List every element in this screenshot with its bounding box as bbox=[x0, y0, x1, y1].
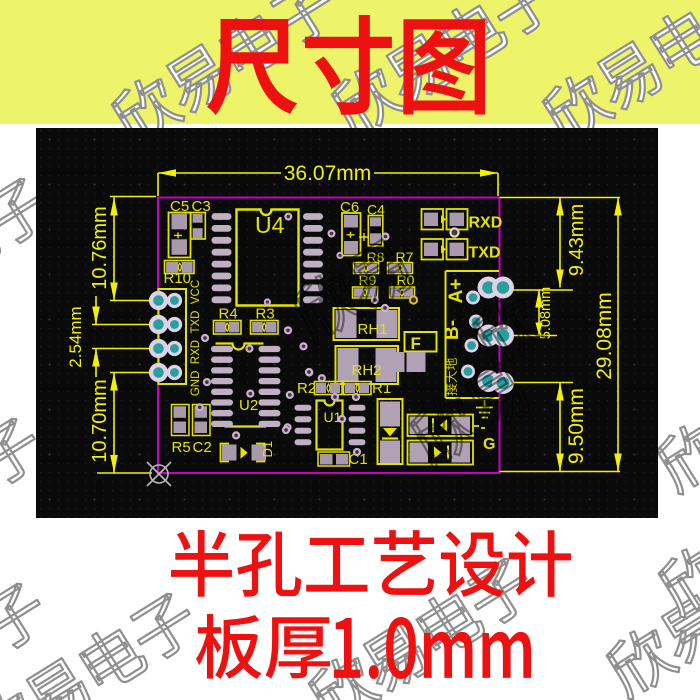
svg-text:10.70mm: 10.70mm bbox=[89, 379, 111, 462]
svg-text:9.50mm: 9.50mm bbox=[565, 388, 588, 464]
svg-text:RH1: RH1 bbox=[358, 321, 388, 338]
svg-text:29.08mm: 29.08mm bbox=[593, 292, 616, 380]
svg-text:R2: R2 bbox=[297, 380, 316, 397]
svg-text:GND RXD TXD VCC: GND RXD TXD VCC bbox=[190, 280, 202, 396]
svg-text:A+: A+ bbox=[446, 279, 467, 304]
svg-text:R5: R5 bbox=[172, 439, 191, 456]
svg-text:U4: U4 bbox=[255, 212, 285, 238]
svg-text:U2: U2 bbox=[239, 397, 258, 414]
svg-text:36.07mm: 36.07mm bbox=[284, 162, 372, 185]
svg-text:R10: R10 bbox=[164, 270, 192, 287]
svg-text:RXD: RXD bbox=[469, 215, 503, 232]
svg-text:5.08mm: 5.08mm bbox=[538, 287, 554, 339]
svg-text:9.43mm: 9.43mm bbox=[566, 204, 588, 276]
svg-text:RH2: RH2 bbox=[352, 362, 382, 379]
svg-text:G: G bbox=[483, 436, 495, 453]
svg-text:R1: R1 bbox=[372, 380, 391, 397]
svg-text:B-: B- bbox=[442, 320, 463, 340]
svg-text:10.76mm: 10.76mm bbox=[89, 206, 111, 289]
svg-text:F: F bbox=[411, 334, 421, 353]
svg-text:C2: C2 bbox=[193, 439, 212, 456]
svg-text:D1: D1 bbox=[260, 441, 275, 458]
svg-text:2.54mm: 2.54mm bbox=[66, 306, 85, 367]
svg-text:TXD: TXD bbox=[469, 245, 501, 262]
